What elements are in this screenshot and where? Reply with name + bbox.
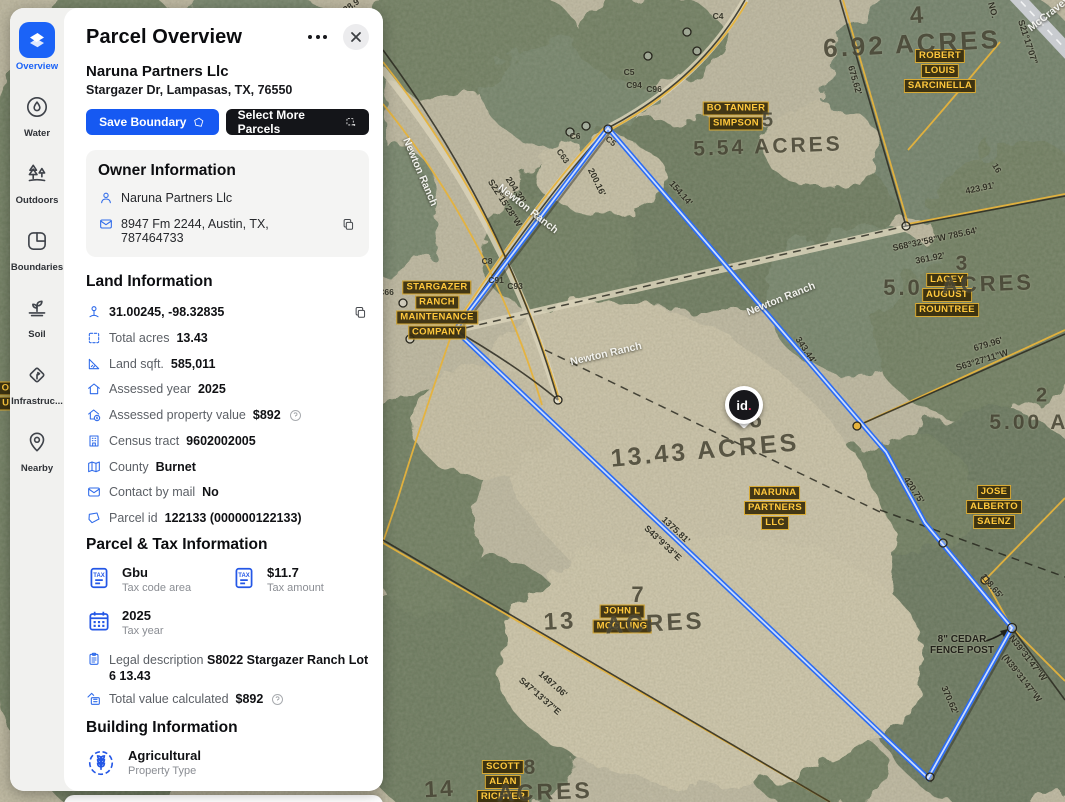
save-boundary-button[interactable]: Save Boundary xyxy=(86,109,219,135)
trees-icon xyxy=(19,156,55,192)
owner-information-card: Owner Information Naruna Partners Llc 89… xyxy=(86,150,369,257)
sidebar-label: Water xyxy=(24,128,50,139)
sidebar-item-water[interactable]: Water xyxy=(10,89,64,139)
boundaries-icon xyxy=(19,223,55,259)
building-info-heading: Building Information xyxy=(86,719,369,737)
tax-code-area-card: TAX Gbu Tax code area xyxy=(86,565,231,594)
parcel-address: Stargazer Dr, Lampasas, TX, 76550 xyxy=(86,83,369,97)
house-dollar-icon xyxy=(86,407,102,423)
legal-description-row: Legal description S8022 Stargazer Ranch … xyxy=(86,652,369,684)
building-icon xyxy=(86,433,102,449)
more-options-icon[interactable] xyxy=(302,29,333,45)
clipboard-icon xyxy=(86,651,102,667)
property-type-value: Agricultural xyxy=(128,748,201,763)
contact-by-mail-row: Contact by mail No xyxy=(86,485,369,500)
sidebar-item-outdoors[interactable]: Outdoors xyxy=(10,156,64,206)
select-parcels-icon xyxy=(345,116,357,129)
assessed-year-row: Assessed year 2025 xyxy=(86,382,369,397)
svg-text:TAX: TAX xyxy=(93,573,104,579)
overview-icon xyxy=(19,22,55,58)
sidebar-label: Outdoors xyxy=(16,195,59,206)
map-pin-icon xyxy=(19,424,55,460)
tool-sidebar: Overview Water Outdoors xyxy=(10,8,64,791)
close-icon[interactable] xyxy=(343,24,369,50)
sidebar-label: Infrastruc... xyxy=(11,396,63,407)
parcel-overview-panel: Parcel Overview Naruna Partners Llc Star… xyxy=(64,8,383,791)
envelope-icon xyxy=(86,484,102,500)
sidebar-label: Nearby xyxy=(21,463,53,474)
mailing-address-value: 8947 Fm 2244, Austin, TX, 787464733 xyxy=(121,217,327,245)
owner-value: Naruna Partners Llc xyxy=(121,191,232,205)
owner-info-heading: Owner Information xyxy=(98,162,357,180)
parcel-card: Overview Water Outdoors xyxy=(10,8,383,791)
copy-icon[interactable] xyxy=(341,217,357,233)
assessed-value-row: Assessed property value $892 xyxy=(86,408,369,424)
tax-year-card: 2025 Tax year xyxy=(86,608,231,637)
sidebar-item-infrastructure[interactable]: Infrastruc... xyxy=(10,357,64,407)
panel-title: Parcel Overview xyxy=(86,26,302,49)
property-type-label: Property Type xyxy=(128,765,201,777)
census-tract-row: Census tract 9602002005 xyxy=(86,434,369,449)
soil-icon xyxy=(19,290,55,326)
land-sqft-row: Land sqft. 585,011 xyxy=(86,357,369,372)
app-window: ROBERTLOUISSARCINELLABO TANNERSIMPSONLAC… xyxy=(0,0,1065,802)
county-map-icon xyxy=(86,459,102,475)
next-card-peek xyxy=(64,795,383,802)
parcel-id-row: Parcel id 122133 (000000122133) xyxy=(86,511,369,526)
tax-amount-card: TAX $11.7 Tax amount xyxy=(231,565,369,594)
parcel-tax-heading: Parcel & Tax Information xyxy=(86,536,369,554)
svg-text:TAX: TAX xyxy=(238,573,249,579)
parcel-polygon-icon xyxy=(86,510,102,526)
sidebar-label: Overview xyxy=(16,61,58,72)
total-acres-row: Total acres 13.43 xyxy=(86,331,369,346)
value-chart-icon xyxy=(86,691,102,707)
sidebar-label: Soil xyxy=(28,329,45,340)
sidebar-item-overview[interactable]: Overview xyxy=(10,22,64,72)
sidebar-item-soil[interactable]: Soil xyxy=(10,290,64,340)
parcel-owner-name: Naruna Partners Llc xyxy=(86,63,369,80)
tax-document-icon: TAX xyxy=(231,565,257,591)
survey-pin-icon xyxy=(86,304,102,320)
water-icon xyxy=(19,89,55,125)
calendar-icon xyxy=(86,608,112,634)
house-icon xyxy=(86,381,102,397)
property-type-row: Agricultural Property Type xyxy=(86,748,369,778)
sidebar-label: Boundaries xyxy=(11,262,63,273)
wheat-icon xyxy=(86,748,116,778)
sidebar-item-boundaries[interactable]: Boundaries xyxy=(10,223,64,273)
person-icon xyxy=(98,190,114,206)
help-icon[interactable] xyxy=(270,692,286,708)
dashed-square-icon xyxy=(86,330,102,346)
tax-document-icon: TAX xyxy=(86,565,112,591)
select-more-parcels-button[interactable]: Select More Parcels xyxy=(226,109,369,135)
county-row: County Burnet xyxy=(86,460,369,475)
road-sign-icon xyxy=(19,357,55,393)
land-info-heading: Land Information xyxy=(86,273,369,291)
polygon-icon xyxy=(192,116,205,129)
sidebar-item-nearby[interactable]: Nearby xyxy=(10,424,64,474)
copy-icon[interactable] xyxy=(353,305,369,321)
coordinates-row: 31.00245, -98.32835 xyxy=(86,305,369,321)
area-ruler-icon xyxy=(86,356,102,372)
help-icon[interactable] xyxy=(288,408,304,424)
total-value-calculated-row: Total value calculated $892 xyxy=(86,692,369,708)
envelope-icon xyxy=(98,216,114,232)
